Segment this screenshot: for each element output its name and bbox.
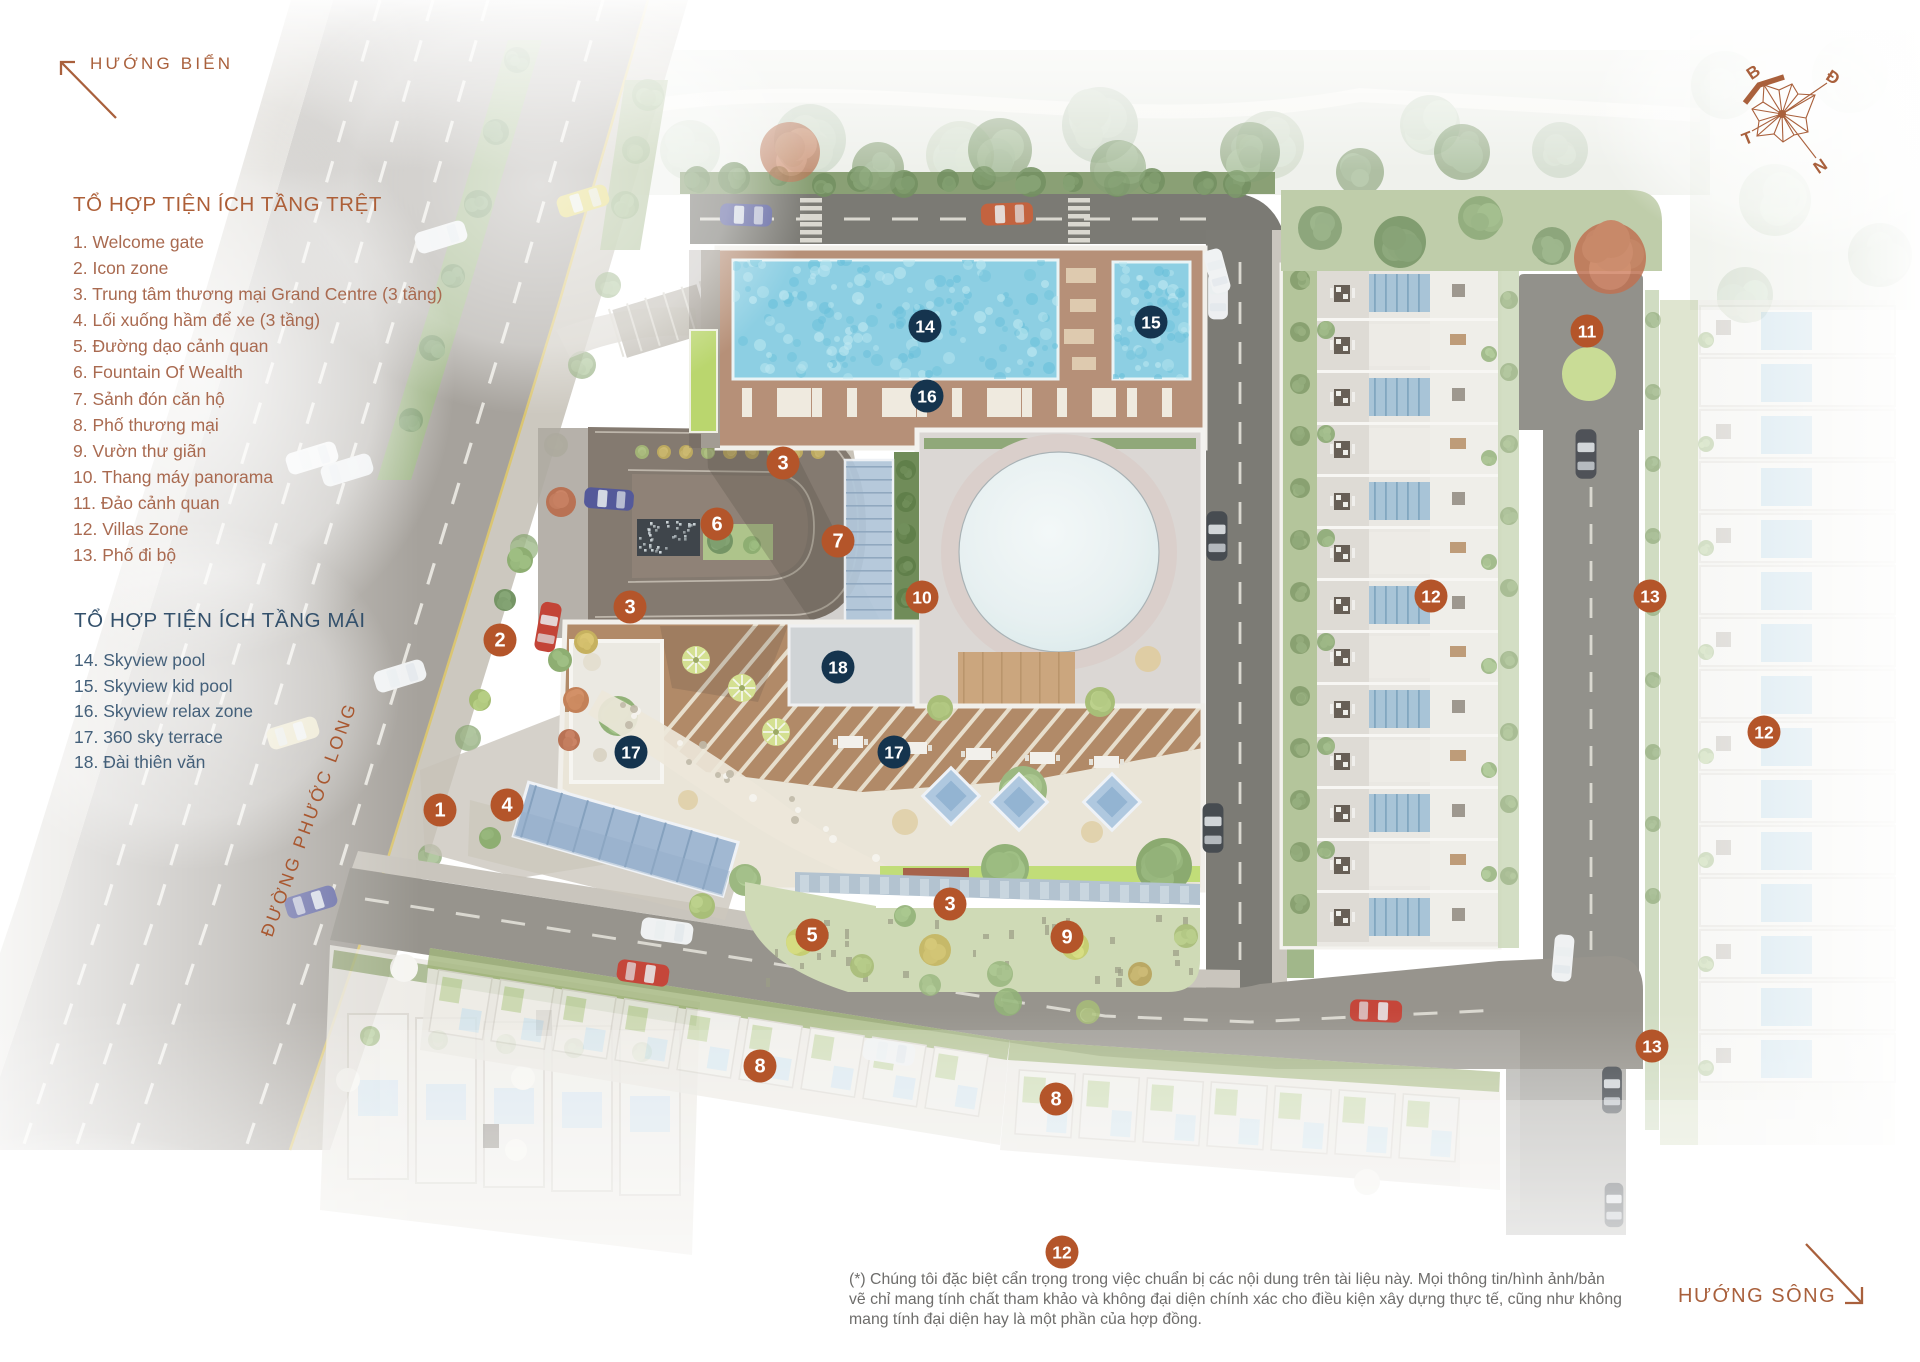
svg-text:HƯỚNG SÔNG: HƯỚNG SÔNG (1678, 1284, 1836, 1307)
svg-text:11: 11 (1578, 322, 1597, 342)
svg-text:12: 12 (1052, 1243, 1072, 1263)
svg-text:11. Đảo cảnh quan: 11. Đảo cảnh quan (73, 493, 220, 513)
svg-text:16. Skyview relax zone: 16. Skyview relax zone (74, 701, 253, 721)
svg-text:2. Icon zone: 2. Icon zone (73, 258, 168, 278)
svg-text:3: 3 (624, 597, 635, 619)
svg-text:14. Skyview pool: 14. Skyview pool (74, 650, 205, 670)
svg-text:7: 7 (832, 531, 843, 553)
svg-text:8: 8 (754, 1056, 765, 1078)
svg-text:3: 3 (944, 894, 955, 916)
svg-text:vẽ chỉ mang tính chất tham khả: vẽ chỉ mang tính chất tham khảo và không… (849, 1291, 1622, 1308)
svg-text:15: 15 (1141, 313, 1161, 333)
svg-text:TỔ HỢP TIỆN ÍCH TẦNG TRỆT: TỔ HỢP TIỆN ÍCH TẦNG TRỆT (73, 192, 382, 216)
svg-text:7. Sảnh đón căn hộ: 7. Sảnh đón căn hộ (73, 389, 225, 409)
svg-text:5: 5 (806, 925, 817, 947)
svg-text:12: 12 (1754, 723, 1774, 743)
svg-text:17. 360 sky terrace: 17. 360 sky terrace (74, 727, 223, 747)
svg-text:12: 12 (1421, 587, 1441, 607)
svg-text:14: 14 (915, 317, 935, 337)
svg-text:8: 8 (1050, 1089, 1061, 1111)
svg-text:12. Villas Zone: 12. Villas Zone (73, 519, 188, 539)
svg-text:HƯỚNG BIỂN: HƯỚNG BIỂN (90, 54, 233, 73)
svg-text:4: 4 (501, 795, 513, 817)
svg-text:9. Vườn thư giãn: 9. Vườn thư giãn (73, 441, 206, 461)
svg-text:13. Phố đi bộ: 13. Phố đi bộ (73, 545, 176, 565)
svg-text:3: 3 (777, 453, 788, 475)
svg-text:3. Trung tâm thương mại Grand: 3. Trung tâm thương mại Grand Centre (3 … (73, 284, 442, 304)
svg-text:17: 17 (621, 743, 640, 763)
svg-text:2: 2 (494, 630, 505, 652)
svg-text:10: 10 (912, 588, 932, 608)
svg-text:18: 18 (828, 658, 848, 678)
svg-text:15. Skyview kid pool: 15. Skyview kid pool (74, 676, 233, 696)
svg-text:mang tính đại diện hay là một: mang tính đại diện hay là một phần của h… (849, 1311, 1202, 1328)
svg-text:TỔ HỢP TIỆN ÍCH TẦNG MÁI: TỔ HỢP TIỆN ÍCH TẦNG MÁI (74, 608, 366, 632)
svg-text:17: 17 (884, 743, 903, 763)
svg-text:18. Đài thiên văn: 18. Đài thiên văn (74, 752, 205, 772)
svg-text:1: 1 (434, 800, 445, 822)
svg-text:13: 13 (1642, 1037, 1662, 1057)
svg-text:16: 16 (917, 387, 937, 407)
svg-text:6. Fountain Of Wealth: 6. Fountain Of Wealth (73, 362, 243, 382)
svg-text:13: 13 (1640, 587, 1660, 607)
svg-text:1. Welcome gate: 1. Welcome gate (73, 232, 204, 252)
svg-text:9: 9 (1061, 927, 1072, 949)
svg-text:8. Phố thương mại: 8. Phố thương mại (73, 415, 219, 435)
svg-text:5. Đường dạo cảnh quan: 5. Đường dạo cảnh quan (73, 336, 268, 356)
svg-text:6: 6 (711, 514, 722, 536)
svg-text:(*) Chúng tôi đặc biệt cẩn trọ: (*) Chúng tôi đặc biệt cẩn trọng trong v… (849, 1270, 1605, 1288)
svg-text:4. Lối xuống hầm để xe (3 tầng: 4. Lối xuống hầm để xe (3 tầng) (73, 310, 320, 330)
svg-text:10. Thang máy panorama: 10. Thang máy panorama (73, 467, 273, 487)
